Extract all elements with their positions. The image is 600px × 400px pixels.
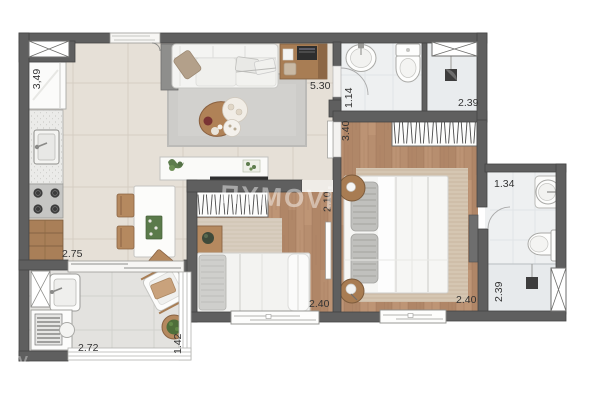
svg-text:3,49: 3,49 [31, 69, 43, 90]
svg-text:1.14: 1.14 [343, 87, 355, 108]
svg-text:2.39: 2.39 [493, 281, 505, 302]
svg-text:1.34: 1.34 [494, 178, 515, 190]
svg-text:1.42: 1.42 [172, 333, 184, 354]
svg-text:2.40: 2.40 [309, 298, 330, 310]
svg-text:ПYMOVİ: ПYMOVİ [220, 179, 336, 215]
svg-text:2.72: 2.72 [78, 342, 99, 354]
svg-text:3.40: 3.40 [340, 120, 352, 141]
svg-text:5.30: 5.30 [310, 80, 331, 92]
svg-text:2.75: 2.75 [62, 248, 83, 260]
svg-text:2.40: 2.40 [456, 294, 477, 306]
svg-text:V: V [18, 353, 28, 370]
svg-text:2.39: 2.39 [458, 97, 479, 109]
